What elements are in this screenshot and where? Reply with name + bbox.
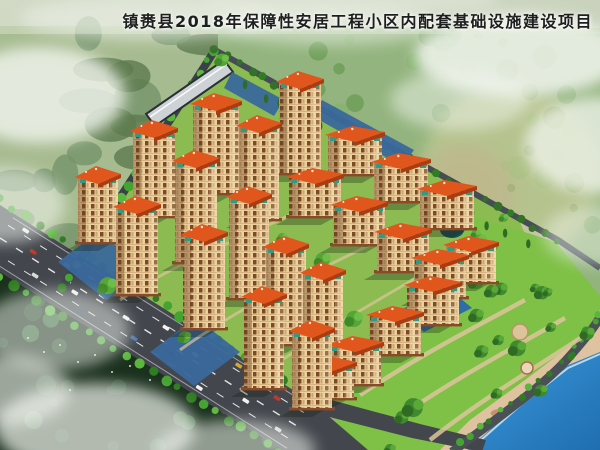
project-title: 镇赉县2018年保障性安居工程小区内配套基础设施建设项目 xyxy=(122,8,593,32)
beach-pavilion xyxy=(521,362,533,374)
bird-dot xyxy=(149,379,151,381)
mist-cloud xyxy=(390,70,530,130)
park-plaza xyxy=(512,324,528,340)
bird-dot xyxy=(129,365,131,367)
bird-dot xyxy=(111,371,113,373)
aerial-rendering xyxy=(0,0,600,450)
screenshot-root: 镇赉县2018年保障性安居工程小区内配套基础设施建设项目 xyxy=(0,0,600,450)
